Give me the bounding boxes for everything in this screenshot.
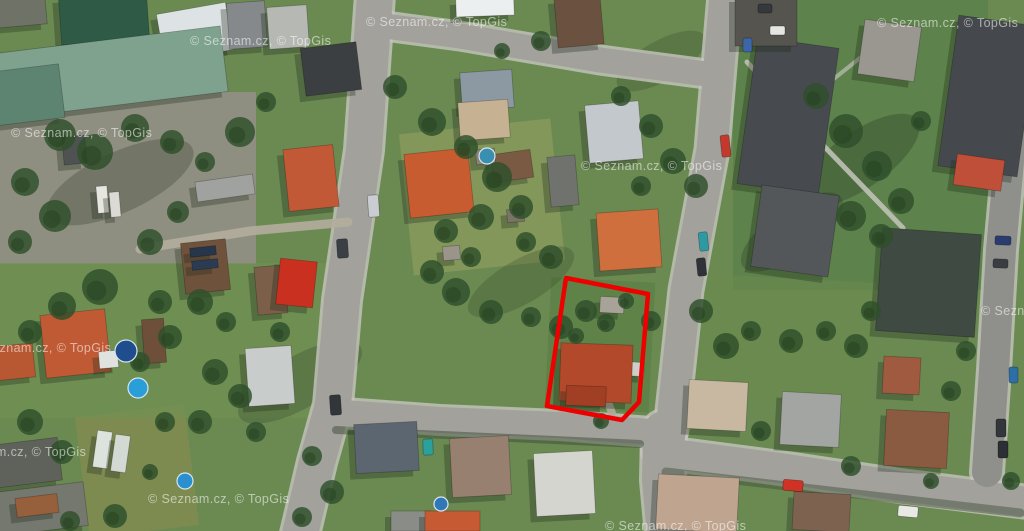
tree-canopy-core — [692, 307, 705, 320]
tree-canopy-core — [133, 359, 144, 370]
shed-nw-corner — [0, 0, 47, 28]
tree-canopy-core — [422, 117, 437, 132]
house-brown-south — [792, 492, 851, 531]
tree-canopy-core — [231, 392, 244, 405]
tree-canopy-core — [161, 333, 174, 346]
tree-canopy-core — [63, 518, 74, 529]
vehicle — [993, 259, 1008, 269]
warehouse-green-wing — [0, 64, 65, 126]
tree-canopy-core — [295, 514, 306, 525]
truck-white-b — [109, 192, 121, 218]
tree-canopy-core — [844, 463, 855, 474]
tree-canopy-core — [944, 388, 955, 399]
shed-gray-mid — [547, 155, 579, 207]
house-white-south — [533, 450, 595, 516]
tree-canopy-core — [542, 253, 555, 266]
tree-canopy-core — [754, 428, 765, 439]
tree-canopy-core — [872, 232, 885, 245]
vehicle — [758, 4, 772, 13]
tree-canopy-core — [21, 328, 34, 341]
tree-canopy-core — [323, 488, 336, 501]
swimming-pool — [177, 473, 193, 489]
tree-canopy-core — [806, 91, 820, 105]
house-orange-west — [283, 145, 339, 212]
tree-canopy-core — [620, 298, 629, 307]
tree-canopy-core — [959, 348, 970, 359]
house-orange-north — [596, 209, 662, 271]
house-highlighted-wing — [566, 385, 607, 406]
vehicle — [898, 505, 919, 518]
satellite-map-view[interactable]: © Seznam.cz, © TopGis© Seznam.cz, © TopG… — [0, 0, 1024, 531]
tree-canopy-core — [864, 308, 875, 319]
map-watermark: © Seznam.cz, © TopGis — [0, 341, 111, 355]
tree-canopy-core — [486, 172, 503, 189]
gym-building — [876, 228, 982, 338]
tree-canopy-core — [140, 237, 154, 251]
tree-canopy-core — [423, 268, 436, 281]
tree-canopy-core — [925, 478, 934, 487]
house-red-roof — [276, 258, 318, 308]
apartment-block-b — [751, 185, 840, 277]
vehicle — [1009, 367, 1018, 383]
tree-canopy-core — [170, 208, 182, 220]
tree-canopy-core — [524, 314, 535, 325]
tree-canopy-core — [219, 319, 230, 330]
tree-canopy-core — [249, 429, 260, 440]
swimming-pool — [479, 148, 495, 164]
tree-canopy-core — [144, 469, 153, 478]
allotment-shed-c — [442, 245, 460, 260]
map-watermark: © Seznam.cz, © TopGis — [605, 519, 746, 531]
tree-canopy-core — [819, 328, 830, 339]
vehicle — [998, 441, 1008, 458]
tree-canopy-core — [687, 182, 700, 195]
map-watermark: © Seznam.cz, © TopGis — [581, 159, 722, 173]
house-se-a — [687, 379, 748, 431]
tree-canopy-core — [744, 328, 755, 339]
map-watermark: © Seznam.cz, © TopGis — [366, 15, 507, 29]
swimming-pool — [115, 340, 137, 362]
house-se-b — [780, 391, 842, 447]
tree-canopy-core — [642, 122, 655, 135]
tree-canopy-core — [534, 38, 545, 49]
swimming-pool — [434, 497, 448, 511]
tree-canopy-core — [437, 227, 450, 240]
vehicle — [329, 395, 341, 416]
roof-orange-bottom — [425, 511, 480, 531]
tree-canopy-core — [190, 297, 204, 311]
tree-canopy-core — [20, 417, 34, 431]
tree-canopy-core — [446, 287, 461, 302]
tree-canopy-core — [229, 127, 246, 144]
tree-canopy-core — [259, 99, 270, 110]
map-watermark: © Seznam.cz, © TopGis — [148, 492, 289, 506]
map-watermark: © Seznam.cz, © TopGis — [0, 445, 86, 459]
tree-canopy-core — [11, 238, 24, 251]
tree-canopy-core — [205, 367, 219, 381]
tree-canopy-core — [570, 333, 579, 342]
map-watermark: © Seznam.cz, © TopGis — [11, 126, 152, 140]
swimming-pool — [128, 378, 148, 398]
tree-canopy-core — [198, 159, 209, 170]
tree-canopy-core — [482, 308, 495, 321]
tree-canopy-core — [82, 146, 102, 166]
tree-canopy-core — [87, 281, 107, 301]
tree-canopy-core — [15, 177, 30, 192]
vehicle — [770, 26, 785, 35]
tree-canopy-core — [833, 125, 852, 144]
tree-canopy-core — [891, 196, 905, 210]
map-watermark: © Seznam.cz, © TopGis — [981, 304, 1024, 318]
vehicle — [743, 38, 752, 52]
tree-canopy-core — [599, 320, 609, 330]
vehicle — [720, 135, 731, 158]
house-white-gray — [245, 345, 295, 406]
tree-canopy-core — [151, 298, 164, 311]
tree-canopy-core — [866, 161, 883, 178]
tree-canopy-core — [464, 254, 475, 265]
house-tan — [458, 99, 511, 140]
tree-canopy-core — [273, 329, 284, 340]
vehicle — [336, 239, 348, 259]
vehicle — [783, 479, 804, 492]
tree-canopy-core — [914, 118, 925, 129]
tree-canopy-core — [840, 211, 857, 228]
house-dark-gray — [300, 42, 361, 96]
house-red-brown-small — [882, 356, 921, 395]
tree-canopy-core — [305, 453, 316, 464]
house-gray-roof — [585, 101, 644, 163]
tree-canopy-core — [52, 301, 67, 316]
tree-canopy-core — [158, 419, 169, 430]
vehicle — [696, 258, 707, 277]
tree-canopy-core — [512, 203, 525, 216]
vehicle — [996, 419, 1006, 437]
tree-canopy-core — [614, 93, 625, 104]
tree-canopy-core — [847, 342, 860, 355]
tree-canopy-core — [716, 341, 730, 355]
tree-canopy-core — [634, 183, 645, 194]
tree-canopy-core — [519, 239, 530, 250]
tree-canopy-core — [386, 83, 399, 96]
map-canvas: © Seznam.cz, © TopGis© Seznam.cz, © TopG… — [0, 0, 1024, 531]
tree-canopy-core — [191, 418, 204, 431]
tree-canopy-core — [43, 210, 61, 228]
house-mauve — [449, 435, 511, 497]
vehicle — [423, 439, 434, 455]
tree-canopy-core — [578, 307, 590, 319]
map-watermark: © Seznam.cz, © TopGis — [190, 34, 331, 48]
vehicle — [367, 195, 380, 218]
vehicle — [995, 236, 1011, 246]
map-watermark: © Seznam.cz, © TopGis — [877, 16, 1018, 30]
tree-canopy-core — [782, 337, 795, 350]
tree-canopy-core — [1004, 478, 1014, 488]
tree-canopy-core — [595, 418, 604, 427]
tree-canopy-core — [457, 143, 470, 156]
roof-orange-section — [953, 154, 1005, 191]
tree-canopy-core — [496, 48, 505, 57]
house-slate — [354, 421, 419, 473]
vehicle — [698, 232, 709, 252]
tree-canopy-core — [471, 212, 485, 226]
house-se-c — [884, 409, 950, 468]
tree-canopy-core — [106, 512, 119, 525]
building-brown-top — [554, 0, 604, 48]
tree-canopy-core — [163, 138, 176, 151]
